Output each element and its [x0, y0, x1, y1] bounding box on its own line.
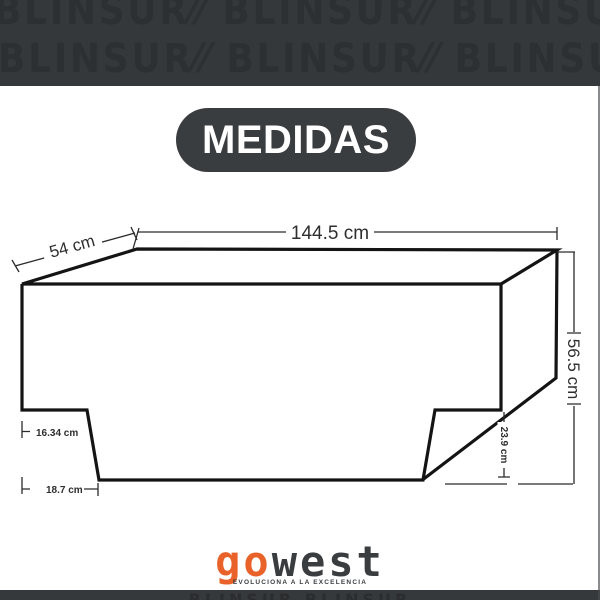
dim-label-total-height: 56.5 cm	[564, 339, 583, 399]
box-front-face	[22, 284, 501, 480]
page: BLINSUR⁄⁄ BLINSUR⁄⁄ BLINSUR⁄⁄ BLINSUR⁄⁄ …	[0, 0, 600, 600]
dim-label-side-depth: 54 cm	[47, 231, 97, 262]
footer-tagline: EVOLUCIONA A LA EXCELENCIA	[0, 579, 600, 586]
dimension-diagram: 144.5 cm 54 cm 56.5 cm 23.9 cm 16.34 cm …	[0, 0, 600, 600]
bottom-bar: BLINSUR BLINSUR	[0, 590, 600, 600]
dim-label-top-width: 144.5 cm	[291, 223, 369, 244]
dim-line-left-upper-inset	[22, 421, 30, 438]
bottom-bar-watermark: BLINSUR BLINSUR	[0, 592, 600, 600]
dim-label-side-depth-group: 54 cm	[40, 228, 103, 263]
dim-label-notch-height: 23.9 cm	[498, 427, 509, 464]
dim-label-total-height-group: 56.5 cm	[564, 332, 585, 406]
footer-logo: gowest	[0, 546, 600, 578]
dim-label-notch-height-group: 23.9 cm	[498, 422, 512, 468]
dim-label-left-lower-inset: 18.7 cm	[46, 485, 83, 496]
box-top-face	[22, 249, 557, 284]
dim-label-left-upper-inset: 16.34 cm	[36, 428, 78, 439]
